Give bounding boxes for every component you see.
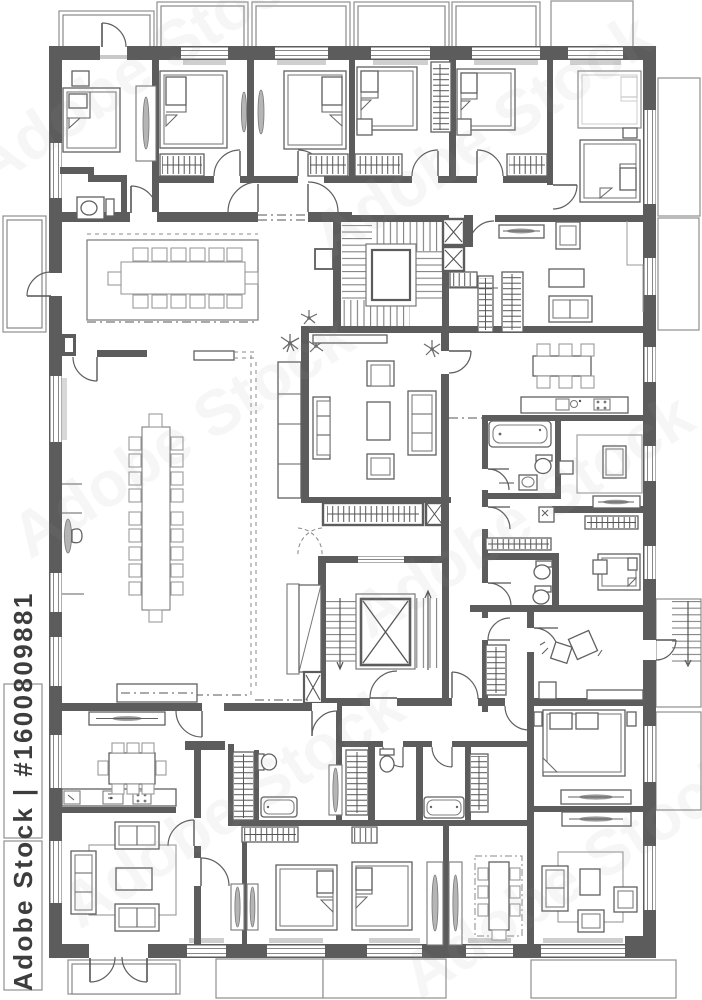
svg-text:Adobe Stock | #1600809881: Adobe Stock | #1600809881 bbox=[8, 591, 38, 991]
